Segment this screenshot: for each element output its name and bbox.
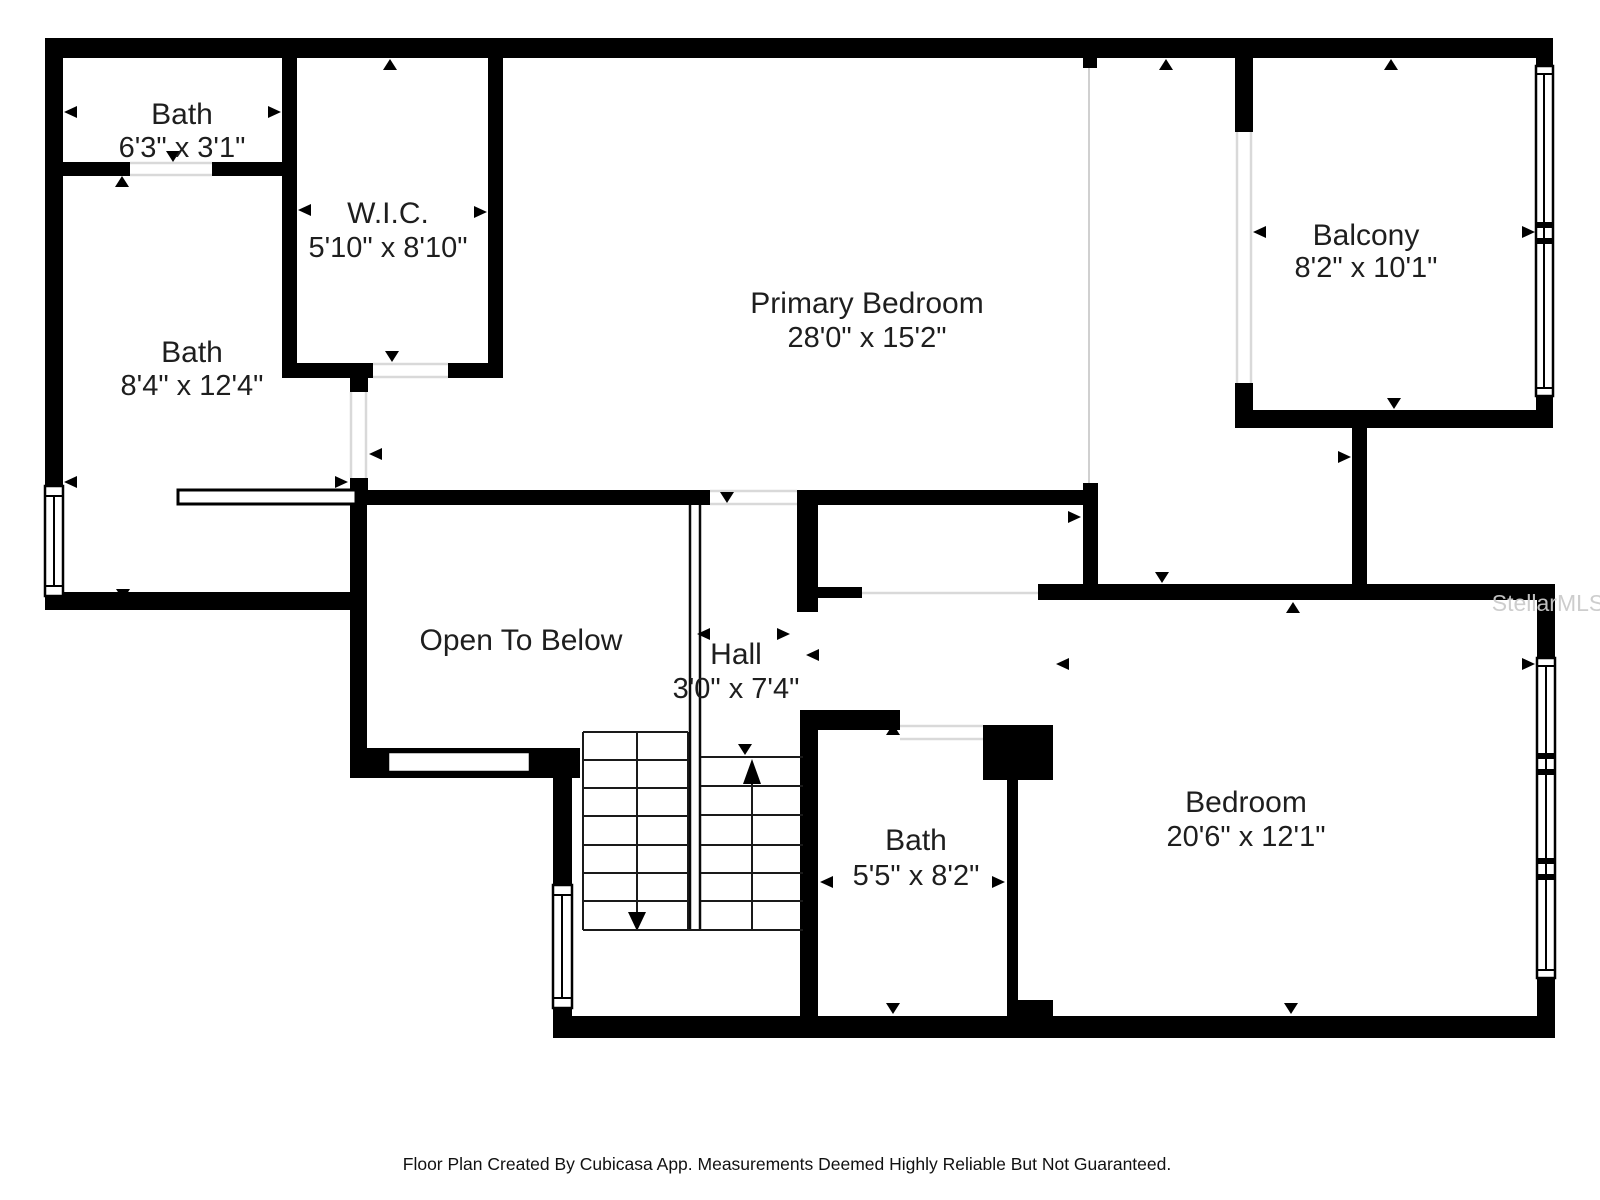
- room-label-primary-bedroom: Primary Bedroom: [750, 287, 983, 320]
- room-label-bath-upper: Bath: [885, 824, 947, 857]
- wall-balcony-connector: [1352, 428, 1367, 588]
- room-dims-primary-bedroom: 28'0" x 15'2": [787, 322, 946, 354]
- room-dims-balcony: 8'2" x 10'1": [1295, 252, 1438, 284]
- arrow-left-icon: [369, 448, 382, 460]
- room-label-hall: Hall: [710, 638, 762, 671]
- wall-wic-bottom-right: [448, 363, 503, 378]
- wall-vestibule-top: [797, 490, 1098, 505]
- wall-bath-small-bottom-left: [45, 162, 130, 176]
- room-dims-bath-main: 8'4" x 12'4": [121, 370, 264, 402]
- wall-balcony-left-upper: [1235, 38, 1253, 132]
- room-label-balcony: Balcony: [1313, 219, 1420, 252]
- window-bath-main-left: [45, 486, 63, 596]
- stairs-down-arrow-icon: [628, 912, 646, 931]
- arrow-right-icon: [1338, 451, 1351, 463]
- wall-open-below-top: [350, 490, 710, 505]
- wall-bath-main-bottom: [45, 592, 367, 610]
- footer-disclaimer: Floor Plan Created By Cubicasa App. Meas…: [403, 1154, 1171, 1174]
- wall-bath-upper-stub: [1018, 1000, 1053, 1016]
- arrow-down-icon: [1155, 572, 1169, 583]
- window-bedroom-right: [1537, 658, 1555, 978]
- room-label-open-to-below: Open To Below: [420, 624, 623, 657]
- room-dims-bedroom: 20'6" x 12'1": [1166, 821, 1325, 853]
- wall-bedroom-top: [1038, 584, 1555, 600]
- room-dims-bath-small: 6'3" x 3'1": [119, 132, 246, 164]
- floor-plan-drawing: Bath 6'3" x 3'1" W.I.C. 5'10" x 8'10" Ba…: [0, 0, 1600, 1200]
- wall-bath-upper-top: [800, 710, 900, 730]
- room-dims-bath-upper: 5'5" x 8'2": [853, 860, 980, 892]
- wall-bath-upper-right: [1007, 780, 1018, 1016]
- railing-open-below: [388, 752, 530, 772]
- arrow-left-icon: [806, 649, 819, 661]
- wall-vestibule-right: [1083, 483, 1098, 597]
- wall-vestibule-stub-left: [818, 587, 862, 598]
- stairs-up-arrow-icon: [743, 759, 761, 784]
- wall-outer-bottom: [553, 1016, 1555, 1038]
- room-label-wic: W.I.C.: [347, 197, 429, 230]
- wall-wic-right: [488, 58, 503, 378]
- arrow-right-icon: [1068, 511, 1081, 523]
- stair-flight-up: [701, 757, 803, 930]
- room-label-bedroom: Bedroom: [1185, 786, 1307, 819]
- room-dims-hall: 3'0" x 7'4": [673, 673, 800, 705]
- room-hall: [700, 505, 797, 757]
- floor-plan-page: Bath 6'3" x 3'1" W.I.C. 5'10" x 8'10" Ba…: [0, 0, 1600, 1200]
- stair-flight-down: [583, 732, 688, 931]
- wall-vestibule-left: [797, 490, 818, 612]
- arrow-down-icon: [720, 492, 734, 503]
- wall-balcony-bottom: [1235, 410, 1553, 428]
- room-dims-wic: 5'10" x 8'10": [308, 232, 467, 264]
- wall-outer-top: [45, 38, 1553, 58]
- stair-railing: [690, 505, 700, 930]
- wall-bathdoor-stub-top: [350, 378, 368, 392]
- stellar-mls-watermark: StellarMLS: [1492, 590, 1600, 616]
- window-balcony-right: [1536, 66, 1553, 396]
- wall-bath-upper-left: [800, 710, 818, 1016]
- room-label-bath-main: Bath: [161, 336, 223, 369]
- wall-open-below-left: [350, 490, 367, 778]
- window-stairwell-left: [553, 885, 572, 1008]
- room-label-bath-small: Bath: [151, 98, 213, 131]
- room-primary-bedroom: [503, 58, 1235, 490]
